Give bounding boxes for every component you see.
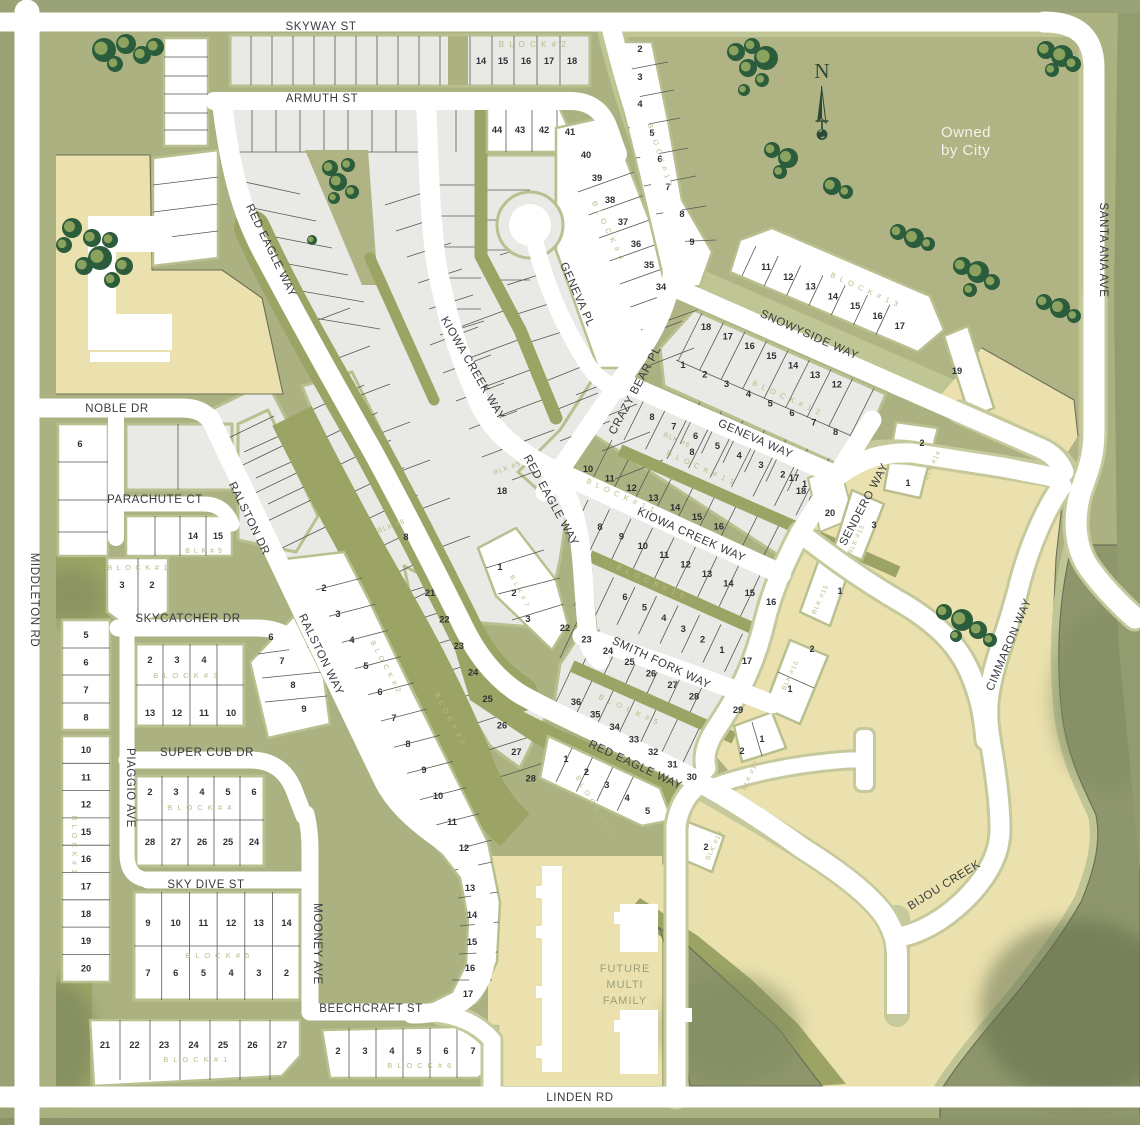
svg-text:13: 13 <box>810 370 820 380</box>
svg-text:3: 3 <box>871 520 876 530</box>
svg-text:4: 4 <box>201 655 207 665</box>
svg-text:2: 2 <box>739 746 744 756</box>
svg-text:21: 21 <box>425 588 435 598</box>
svg-text:14: 14 <box>723 578 734 588</box>
svg-text:19: 19 <box>952 366 962 376</box>
svg-text:1: 1 <box>719 645 724 655</box>
svg-text:5: 5 <box>645 806 650 816</box>
svg-text:20: 20 <box>825 508 835 518</box>
svg-text:27: 27 <box>171 837 181 847</box>
svg-text:2: 2 <box>335 1046 340 1056</box>
svg-text:13: 13 <box>805 282 815 292</box>
svg-text:N: N <box>814 59 829 83</box>
svg-text:2: 2 <box>147 655 152 665</box>
svg-text:36: 36 <box>631 239 641 249</box>
svg-text:17: 17 <box>81 882 91 892</box>
svg-text:24: 24 <box>188 1040 199 1050</box>
svg-text:13: 13 <box>702 569 712 579</box>
svg-text:7: 7 <box>145 968 150 978</box>
svg-text:1: 1 <box>905 478 910 488</box>
svg-text:26: 26 <box>497 721 507 731</box>
svg-text:14: 14 <box>467 910 478 920</box>
svg-text:23: 23 <box>159 1040 169 1050</box>
svg-text:1: 1 <box>837 586 842 596</box>
svg-text:41: 41 <box>565 127 575 137</box>
svg-text:15: 15 <box>692 512 702 522</box>
svg-text:SKY DIVE ST: SKY DIVE ST <box>167 879 244 891</box>
svg-text:14: 14 <box>670 502 681 512</box>
svg-text:14: 14 <box>281 918 292 928</box>
svg-text:B L O C K # 2: B L O C K # 2 <box>499 40 568 49</box>
svg-text:9: 9 <box>301 704 306 714</box>
svg-text:9: 9 <box>145 918 150 928</box>
svg-text:MULTI: MULTI <box>606 979 643 991</box>
svg-text:3: 3 <box>362 1046 367 1056</box>
svg-text:2: 2 <box>321 583 326 593</box>
svg-text:12: 12 <box>81 800 91 810</box>
svg-text:3: 3 <box>604 780 609 790</box>
svg-text:6: 6 <box>377 687 382 697</box>
svg-text:5: 5 <box>768 398 773 408</box>
svg-text:16: 16 <box>714 522 724 532</box>
svg-text:5: 5 <box>201 968 206 978</box>
svg-text:23: 23 <box>454 641 464 651</box>
svg-text:17: 17 <box>544 56 554 66</box>
svg-text:4: 4 <box>229 968 235 978</box>
svg-text:8: 8 <box>83 713 88 723</box>
svg-text:3: 3 <box>724 379 729 389</box>
svg-text:8: 8 <box>290 680 295 690</box>
svg-text:3: 3 <box>681 624 686 634</box>
svg-text:1: 1 <box>680 360 685 370</box>
svg-text:6: 6 <box>443 1046 448 1056</box>
svg-text:8: 8 <box>689 447 694 457</box>
svg-text:17: 17 <box>742 656 752 666</box>
svg-text:28: 28 <box>526 774 536 784</box>
svg-text:by City: by City <box>941 142 990 159</box>
svg-text:11: 11 <box>198 918 208 928</box>
svg-text:17: 17 <box>723 332 733 342</box>
svg-text:16: 16 <box>744 341 754 351</box>
svg-text:12: 12 <box>172 708 182 718</box>
svg-text:25: 25 <box>223 837 233 847</box>
svg-text:6: 6 <box>251 787 256 797</box>
svg-text:4: 4 <box>349 635 355 645</box>
svg-text:17: 17 <box>895 321 905 331</box>
svg-text:3: 3 <box>173 787 178 797</box>
svg-text:10: 10 <box>583 464 593 474</box>
svg-text:28: 28 <box>689 691 699 701</box>
svg-text:8: 8 <box>405 739 410 749</box>
svg-text:SUPER CUB DR: SUPER CUB DR <box>160 747 254 759</box>
svg-text:12: 12 <box>626 483 636 493</box>
svg-text:8: 8 <box>597 522 602 532</box>
svg-text:3: 3 <box>119 580 124 590</box>
svg-text:16: 16 <box>872 311 882 321</box>
svg-text:5: 5 <box>225 787 230 797</box>
svg-text:18: 18 <box>497 486 507 496</box>
svg-text:18: 18 <box>701 322 711 332</box>
svg-text:PARACHUTE CT: PARACHUTE CT <box>107 494 203 506</box>
svg-text:2: 2 <box>147 787 152 797</box>
svg-text:4: 4 <box>661 613 667 623</box>
svg-text:2: 2 <box>780 470 785 480</box>
svg-text:15: 15 <box>745 588 755 598</box>
svg-text:MIDDLETON RD: MIDDLETON RD <box>28 553 40 648</box>
svg-text:FUTURE: FUTURE <box>600 963 651 975</box>
svg-text:8: 8 <box>649 412 654 422</box>
svg-text:15: 15 <box>81 827 91 837</box>
svg-text:4: 4 <box>389 1046 395 1056</box>
svg-text:35: 35 <box>644 260 654 270</box>
svg-text:6: 6 <box>77 439 82 449</box>
svg-text:27: 27 <box>277 1040 287 1050</box>
svg-text:14: 14 <box>788 360 799 370</box>
svg-text:7: 7 <box>671 422 676 432</box>
svg-text:13: 13 <box>465 883 475 893</box>
svg-text:8: 8 <box>403 532 408 542</box>
svg-text:4: 4 <box>199 787 205 797</box>
svg-text:8: 8 <box>833 427 838 437</box>
svg-text:16: 16 <box>521 56 531 66</box>
svg-text:9: 9 <box>421 765 426 775</box>
svg-text:18: 18 <box>81 909 91 919</box>
svg-text:3: 3 <box>637 72 642 82</box>
svg-text:FAMILY: FAMILY <box>603 995 647 1007</box>
svg-text:25: 25 <box>218 1040 228 1050</box>
svg-text:6: 6 <box>622 592 627 602</box>
svg-text:13: 13 <box>254 918 264 928</box>
svg-text:BEECHCRAFT ST: BEECHCRAFT ST <box>319 1003 422 1015</box>
svg-text:3: 3 <box>525 614 530 624</box>
svg-text:PIAGGIO AVE: PIAGGIO AVE <box>124 748 136 828</box>
svg-text:15: 15 <box>850 301 860 311</box>
svg-text:19: 19 <box>81 936 91 946</box>
svg-text:16: 16 <box>766 597 776 607</box>
svg-text:16: 16 <box>81 854 91 864</box>
svg-text:38: 38 <box>605 195 615 205</box>
svg-text:17: 17 <box>789 473 799 483</box>
svg-text:2: 2 <box>702 370 707 380</box>
svg-text:B L O C K # 6: B L O C K # 6 <box>387 1061 453 1070</box>
svg-text:25: 25 <box>482 694 492 704</box>
svg-text:B L O C K # 1: B L O C K # 1 <box>107 563 169 572</box>
svg-text:44: 44 <box>492 125 503 135</box>
svg-text:6: 6 <box>83 658 88 668</box>
svg-text:18: 18 <box>796 486 806 496</box>
svg-text:B L K # 9: B L K # 9 <box>185 548 223 555</box>
svg-text:10: 10 <box>171 918 181 928</box>
svg-text:15: 15 <box>213 531 223 541</box>
svg-text:B L O C K # 1: B L O C K # 1 <box>163 1055 229 1064</box>
svg-text:10: 10 <box>226 708 236 718</box>
svg-text:2: 2 <box>149 580 154 590</box>
svg-text:NOBLE DR: NOBLE DR <box>85 403 149 415</box>
svg-text:32: 32 <box>648 747 658 757</box>
svg-text:MOONEY AVE: MOONEY AVE <box>311 903 323 985</box>
svg-text:SKYCATCHER DR: SKYCATCHER DR <box>135 613 240 625</box>
svg-text:SKYWAY ST: SKYWAY ST <box>285 21 356 33</box>
svg-text:34: 34 <box>609 722 620 732</box>
svg-text:3: 3 <box>256 968 261 978</box>
svg-text:34: 34 <box>656 282 667 292</box>
svg-text:39: 39 <box>592 173 602 183</box>
svg-text:15: 15 <box>498 56 508 66</box>
svg-text:6: 6 <box>173 968 178 978</box>
svg-text:3: 3 <box>758 460 763 470</box>
svg-text:17: 17 <box>463 989 473 999</box>
svg-text:11: 11 <box>447 817 457 827</box>
svg-text:13: 13 <box>648 493 658 503</box>
svg-text:5: 5 <box>416 1046 421 1056</box>
svg-text:Owned: Owned <box>941 124 991 141</box>
svg-text:40: 40 <box>581 150 591 160</box>
svg-text:6: 6 <box>693 431 698 441</box>
svg-text:12: 12 <box>459 843 469 853</box>
svg-text:4: 4 <box>746 389 752 399</box>
svg-text:22: 22 <box>439 615 449 625</box>
svg-text:23: 23 <box>581 634 591 644</box>
svg-text:LINDEN RD: LINDEN RD <box>546 1092 613 1104</box>
svg-text:8: 8 <box>679 209 684 219</box>
svg-text:27: 27 <box>667 680 677 690</box>
svg-text:2: 2 <box>284 968 289 978</box>
svg-text:2: 2 <box>700 634 705 644</box>
svg-text:12: 12 <box>832 380 842 390</box>
svg-text:33: 33 <box>629 735 639 745</box>
svg-text:9: 9 <box>689 237 694 247</box>
svg-text:7: 7 <box>83 685 88 695</box>
svg-text:7: 7 <box>279 656 284 666</box>
svg-text:1: 1 <box>497 562 502 572</box>
svg-text:7: 7 <box>470 1046 475 1056</box>
svg-text:4: 4 <box>637 99 643 109</box>
svg-text:5: 5 <box>715 441 720 451</box>
svg-text:14: 14 <box>828 291 839 301</box>
svg-text:5: 5 <box>83 630 88 640</box>
svg-text:2: 2 <box>637 44 642 54</box>
svg-text:2: 2 <box>919 438 924 448</box>
svg-text:5: 5 <box>363 661 368 671</box>
svg-text:ARMUTH ST: ARMUTH ST <box>286 93 358 105</box>
svg-text:26: 26 <box>247 1040 257 1050</box>
svg-text:3: 3 <box>335 609 340 619</box>
svg-text:1: 1 <box>563 754 568 764</box>
svg-text:14: 14 <box>476 56 487 66</box>
svg-text:42: 42 <box>539 125 549 135</box>
svg-text:24: 24 <box>603 646 614 656</box>
svg-text:6: 6 <box>789 408 794 418</box>
svg-text:12: 12 <box>680 560 690 570</box>
svg-text:28: 28 <box>145 837 155 847</box>
svg-text:12: 12 <box>783 272 793 282</box>
svg-text:20: 20 <box>81 963 91 973</box>
svg-text:SANTA ANA AVE: SANTA ANA AVE <box>1097 203 1109 298</box>
svg-text:36: 36 <box>571 697 581 707</box>
svg-text:4: 4 <box>737 450 743 460</box>
svg-text:31: 31 <box>667 760 677 770</box>
svg-text:1: 1 <box>759 734 764 744</box>
svg-text:30: 30 <box>687 772 697 782</box>
svg-text:22: 22 <box>560 623 570 633</box>
svg-text:15: 15 <box>766 351 776 361</box>
svg-text:2: 2 <box>809 644 814 654</box>
svg-text:2: 2 <box>584 767 589 777</box>
svg-text:10: 10 <box>81 745 91 755</box>
svg-text:5: 5 <box>642 603 647 613</box>
svg-text:B L O C K # 1: B L O C K # 1 <box>70 816 77 875</box>
svg-text:24: 24 <box>468 668 479 678</box>
svg-text:27: 27 <box>511 747 521 757</box>
svg-text:11: 11 <box>81 772 91 782</box>
svg-text:37: 37 <box>618 217 628 227</box>
svg-text:7: 7 <box>811 418 816 428</box>
svg-text:11: 11 <box>659 550 669 560</box>
svg-text:12: 12 <box>226 918 236 928</box>
svg-text:25: 25 <box>624 657 634 667</box>
svg-text:13: 13 <box>145 708 155 718</box>
svg-text:7: 7 <box>391 713 396 723</box>
svg-text:29: 29 <box>733 705 743 715</box>
svg-text:18: 18 <box>567 56 577 66</box>
svg-text:22: 22 <box>129 1040 139 1050</box>
svg-text:24: 24 <box>249 837 260 847</box>
svg-text:B L O C K # 3: B L O C K # 3 <box>153 671 219 680</box>
svg-text:16: 16 <box>465 963 475 973</box>
svg-text:10: 10 <box>638 541 648 551</box>
svg-text:35: 35 <box>590 710 600 720</box>
svg-text:B L O C K # 4: B L O C K # 4 <box>167 803 233 812</box>
svg-text:26: 26 <box>197 837 207 847</box>
svg-text:11: 11 <box>605 474 615 484</box>
svg-text:11: 11 <box>761 262 771 272</box>
svg-text:4: 4 <box>625 793 631 803</box>
svg-text:14: 14 <box>188 531 198 541</box>
svg-text:11: 11 <box>199 708 209 718</box>
svg-text:6: 6 <box>268 632 273 642</box>
svg-text:9: 9 <box>619 531 624 541</box>
svg-text:10: 10 <box>433 791 443 801</box>
svg-text:15: 15 <box>467 937 477 947</box>
svg-text:43: 43 <box>515 125 525 135</box>
svg-text:26: 26 <box>646 669 656 679</box>
svg-text:21: 21 <box>100 1040 110 1050</box>
svg-text:B L O C K # 5: B L O C K # 5 <box>185 951 251 960</box>
svg-text:3: 3 <box>174 655 179 665</box>
